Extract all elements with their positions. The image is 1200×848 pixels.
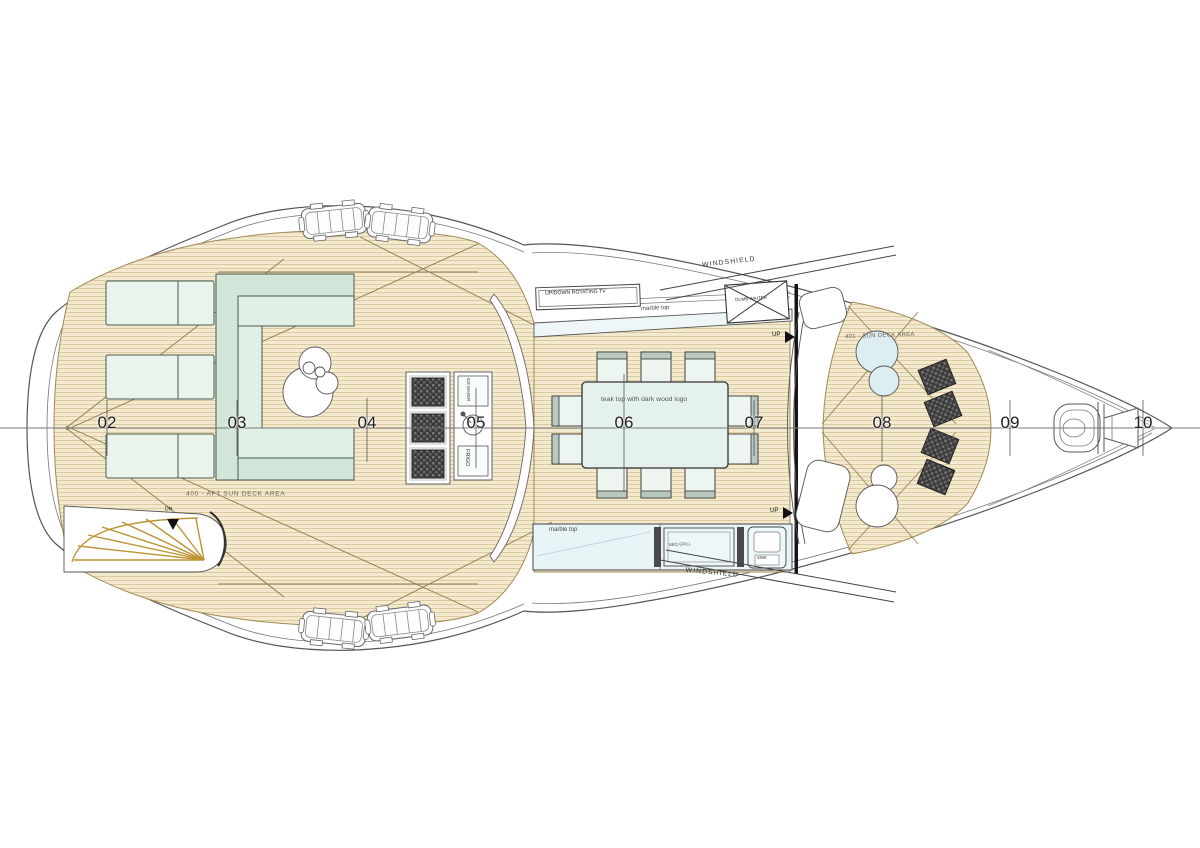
station-number-07: 07 (734, 413, 774, 433)
bbq-label: BBQ GRILL (669, 542, 691, 547)
station-number-03: 03 (217, 413, 257, 433)
sun-loungers (106, 281, 214, 478)
fan-staircase (64, 506, 226, 572)
station-number-02: 02 (87, 413, 127, 433)
station-number-06: 06 (604, 413, 644, 433)
ice-maker-label: ICE MAKER (466, 378, 470, 401)
station-number-08: 08 (862, 413, 902, 433)
grill-pad (412, 450, 444, 478)
marble-top-label-upper: marble top (641, 305, 670, 312)
station-number-10: 10 (1123, 413, 1163, 433)
sink-label: SINK (757, 556, 767, 560)
fridge-box (458, 446, 488, 476)
dining-table-label: teak top with dark wood logo (601, 396, 687, 403)
up-label-bottom: UP (770, 508, 778, 514)
down-label: DN (165, 507, 172, 512)
fridge-label: FRIGO (465, 449, 471, 466)
deck-plan: WINDSHIELD WINDSHIELD UP/DOWN ROTATING T… (0, 0, 1200, 848)
up-label-top: UP (772, 332, 780, 338)
station-number-05: 05 (456, 413, 496, 433)
station-number-04: 04 (347, 413, 387, 433)
grill-pad (412, 378, 444, 406)
ice-maker-box (458, 376, 488, 406)
station-number-09: 09 (990, 413, 1030, 433)
aft-sun-deck-label: 400 - AFT SUN DECK AREA (186, 491, 285, 498)
marble-top-label-lower: marble top (549, 527, 577, 533)
